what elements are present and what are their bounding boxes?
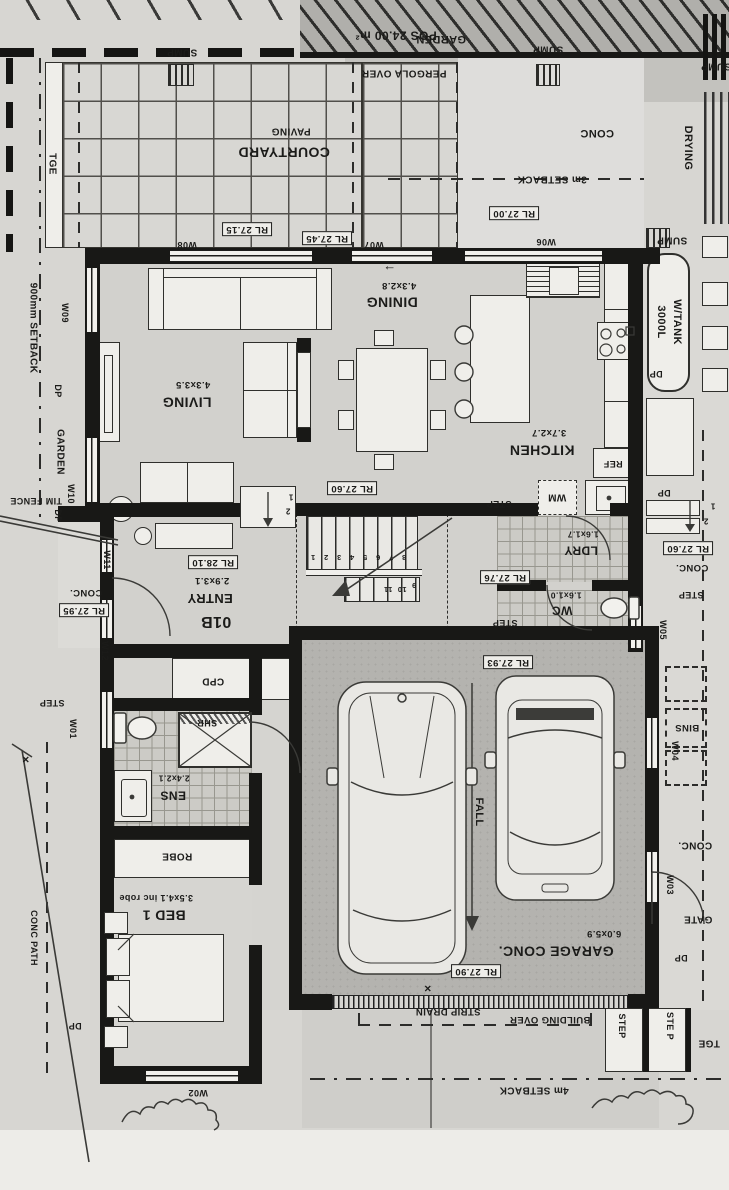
label-wc-dim: 1.6x1.0 [550, 590, 581, 599]
label-stair-10: 10 [397, 585, 406, 593]
label-w11: W11 [101, 550, 111, 569]
label-wc: WC [552, 603, 573, 616]
label-w03: W03 [664, 875, 674, 895]
label-garden-top: GARDEN [416, 33, 466, 45]
label-conc-right-2: CONC. [678, 840, 712, 851]
label-w08: W08 [177, 239, 197, 249]
label-rl-27-93: RL 27.93 [483, 655, 533, 669]
label-tank-line2: W/TANK [671, 299, 683, 345]
label-rl-27-60-b: RL 27.60 [663, 541, 713, 555]
label-rl-27-00: RL 27.00 [489, 206, 539, 220]
label-unit: 01B [201, 612, 232, 630]
label-stair-8: 8 [402, 553, 407, 561]
label-rl-27-90: RL 27.90 [451, 964, 501, 978]
label-tge-left: TGE [47, 153, 58, 175]
label-step-3: STEP [492, 617, 517, 627]
label-stair-7: 7 [389, 553, 394, 561]
label-w12: W12 [99, 641, 109, 661]
label-sump-3: SUMP [701, 61, 729, 72]
label-tim-fence: TIM FENCE [10, 495, 62, 505]
label-sump-4: SUMP [657, 235, 688, 246]
label-setback-900: 900mm SETBACK [28, 283, 39, 374]
label-stepnum-l2: 2 [286, 506, 291, 515]
label-setback-4m: 4m SETBACK [499, 1085, 569, 1096]
label-garage-dim: 6.0x5.9 [587, 928, 622, 938]
label-bed1-dim: 3.5x4.1 inc robe [119, 892, 193, 902]
label-rl-27-60-a: RL 27.60 [327, 481, 377, 495]
label-cross-2: × [424, 982, 431, 995]
label-stepnum-r1: 1 [711, 501, 716, 510]
label-w10: W10 [65, 484, 75, 504]
label-stair-11: 11 [384, 585, 393, 593]
label-step-5: STEP [616, 1013, 626, 1038]
label-dp-gate: DP [674, 952, 687, 962]
label-w06: W06 [536, 236, 556, 246]
label-garage: GARAGE CONC. [498, 943, 613, 958]
label-entry: ENTRY [187, 591, 233, 605]
label-w05: W05 [657, 620, 667, 640]
label-bed1: BED 1 [142, 907, 185, 922]
label-stair-2: 2 [324, 553, 329, 561]
label-pergola-over: PERGOLA OVER [362, 68, 447, 79]
label-rl-27-95: RL 27.95 [59, 603, 109, 617]
label-w09: W09 [59, 303, 69, 323]
label-dining: DINING [366, 294, 417, 309]
label-step-4: STEP [39, 697, 64, 707]
label-stair-4: 4 [350, 553, 355, 561]
label-w07: W07 [364, 239, 384, 249]
label-dp-right-1: DP [657, 487, 670, 497]
label-conc-left: CONC. [70, 587, 103, 597]
label-stair-6: 6 [376, 553, 381, 561]
label-stair-3: 3 [337, 553, 342, 561]
label-step-2: STEP [678, 589, 703, 599]
label-ens-dim: 2.4x2.1 [158, 773, 189, 782]
label-stepnum-l1: 1 [289, 492, 294, 501]
label-dp-tank: DP [649, 368, 662, 378]
label-sump-2: SUMP [533, 44, 564, 55]
label-tge-bottom: TGE [698, 1038, 720, 1049]
label-entry-dim: 2.9x3.1 [195, 575, 230, 585]
label-tank-line1: 3000L [655, 305, 667, 338]
label-fall: FALL [473, 797, 485, 826]
label-ldry-dim: 1.6x1.7 [567, 529, 598, 538]
label-living-dim: 4.3x3.5 [176, 379, 211, 389]
label-gate: GATE [684, 914, 713, 925]
floor-plan-sheet: POS 24.00 m²SUMPGARDENSUMPSUMPPERGOLA OV… [0, 0, 729, 1190]
label-ldry: LDRY [564, 543, 598, 556]
label-shr: SHR [197, 717, 217, 727]
label-stair-5: 5 [363, 553, 368, 561]
label-kitchen-dim: 3.7x2.7 [532, 427, 567, 437]
label-w02: W02 [188, 1087, 208, 1097]
label-cpd: CPD [202, 676, 224, 687]
label-cross-1: × [22, 753, 29, 766]
label-dp-left-2: DP [52, 509, 62, 522]
label-dining-dim: 4.3x2.8 [382, 280, 417, 290]
label-garden-left: GARDEN [55, 429, 66, 475]
label-ref: REF [603, 458, 622, 468]
label-conc-top: CONC [580, 127, 614, 139]
label-conc-right-1: CONC. [676, 562, 709, 572]
label-kitchen: KITCHEN [509, 442, 574, 457]
label-drying: DRYING [682, 126, 694, 171]
label-w04: W04 [669, 741, 679, 761]
label-wm: WM [548, 492, 567, 503]
label-courtyard: COURTYARD [238, 144, 330, 159]
label-setback-3m: 3m SETBACK [517, 174, 587, 185]
label-paving: PAVING [271, 126, 310, 137]
label-dining-arrow: ← [383, 259, 396, 273]
label-strip-drain: STRIP DRAIN [416, 1006, 481, 1016]
label-bins: BINS [675, 722, 699, 732]
label-sump-1: SUMP [167, 47, 198, 58]
label-conc-path: CONC PATH [28, 910, 38, 966]
label-stair-9: 9 [412, 581, 417, 589]
label-rl-27-45: RL 27.45 [302, 231, 352, 245]
label-rl-27-15: RL 27.15 [222, 222, 272, 236]
label-stepnum-r2: 2 [704, 516, 709, 525]
label-step-1: STEP [486, 498, 511, 508]
label-rl-28-10: RL 28.10 [188, 555, 238, 569]
label-dp-bed: DP [68, 1020, 81, 1030]
label-ens: ENS [160, 788, 186, 801]
label-step-6: STE P [664, 1012, 674, 1040]
label-dp-left-1: DP [52, 384, 62, 397]
label-robe: ROBE [162, 851, 193, 862]
label-building-over: BUILDING OVER [510, 1014, 591, 1024]
label-living: LIVING [162, 394, 211, 409]
label-stair-1: 1 [311, 553, 316, 561]
label-w01: W01 [67, 719, 77, 739]
labels-layer: POS 24.00 m²SUMPGARDENSUMPSUMPPERGOLA OV… [0, 0, 729, 1190]
label-rl-27-76: RL 27.76 [480, 570, 530, 584]
